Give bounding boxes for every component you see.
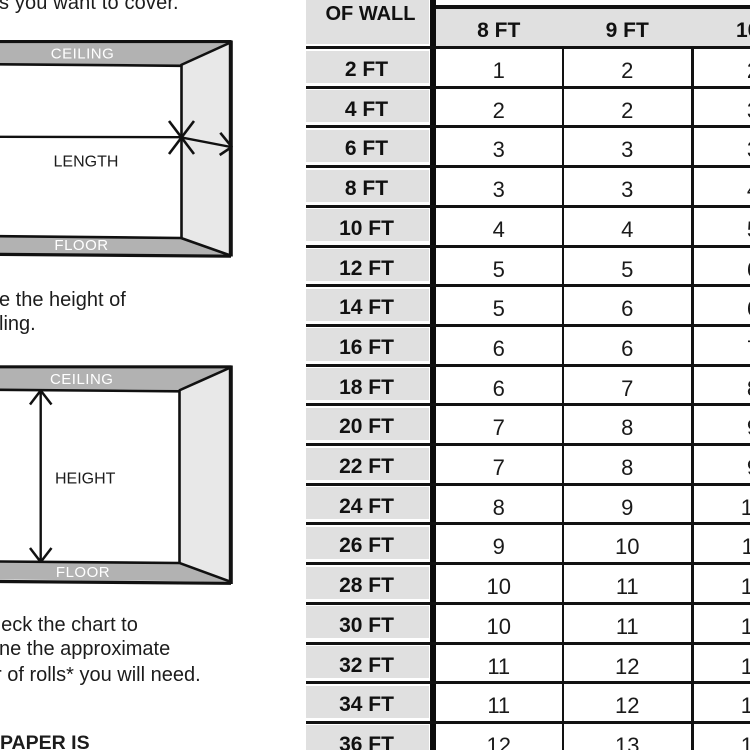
svg-text:FLOOR: FLOOR (54, 237, 108, 254)
svg-text:CEILING: CEILING (51, 46, 115, 63)
svg-text:LENGTH: LENGTH (54, 154, 119, 171)
svg-text:HEIGHT: HEIGHT (55, 471, 116, 488)
svg-text:FLOOR: FLOOR (56, 564, 110, 581)
svg-text:CEILING: CEILING (50, 371, 114, 388)
